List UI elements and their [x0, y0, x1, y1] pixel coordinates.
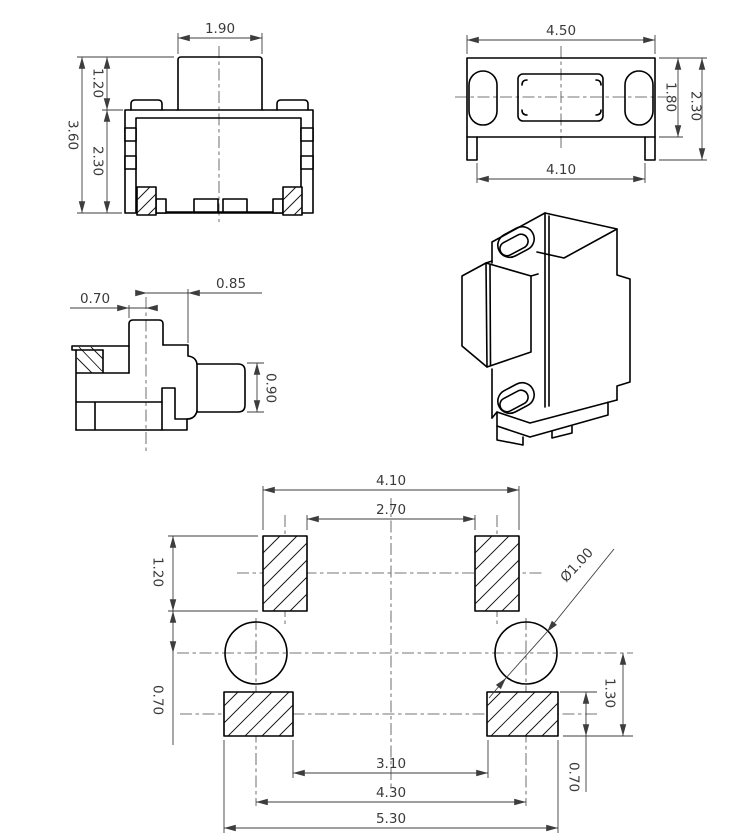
dim-front-body-height: 2.30 [90, 146, 106, 176]
iso-button-edge [486, 263, 491, 367]
side-base-plate [76, 402, 187, 430]
dim-top-depth-with-terminals: 2.30 [688, 91, 704, 121]
fp-dim-ext-120 [168, 536, 258, 611]
front-center-tab-1 [194, 199, 218, 212]
front-center-tab-2 [223, 199, 247, 212]
front-left-foot [137, 187, 156, 215]
side-right-profile [163, 345, 197, 419]
dim-fp-top-pad-span-outer: 4.10 [376, 473, 406, 489]
side-dim-ext-3 [247, 363, 264, 412]
iso-left-outline [492, 213, 545, 418]
dim-fp-bottom-pad-height: 0.70 [566, 762, 582, 792]
dim-fp-top-pad-height: 1.20 [150, 557, 166, 587]
iso-bracket-foot [497, 426, 523, 445]
dim-top-body-width: 4.50 [546, 23, 576, 39]
front-button-outline [178, 57, 262, 110]
dim-fp-top-pad-to-hole: 0.70 [150, 685, 166, 715]
dim-fp-hole-span: 4.30 [376, 785, 406, 801]
side-view: 0.70 0.85 0.90 [70, 276, 279, 452]
dim-front-button-width: 1.90 [205, 21, 235, 37]
iso-bracket [492, 400, 617, 437]
dim-side-body-offset: 0.85 [216, 276, 246, 292]
front-view: 1.90 3.60 1.20 2.30 [65, 21, 314, 222]
top-left-oval [469, 71, 497, 125]
front-left-step [156, 199, 166, 213]
side-actuator [197, 364, 245, 412]
dim-fp-top-pad-span-inner: 2.70 [376, 502, 406, 518]
top-window-corner-marks [522, 80, 601, 115]
iso-bottom-oval-outer [494, 378, 539, 417]
top-view: 4.50 4.10 1.80 2.30 [455, 23, 707, 183]
top-right-oval [625, 71, 653, 125]
iso-button-connectors [486, 261, 538, 276]
iso-button-outline [462, 263, 531, 367]
dim-side-stem-height: 0.90 [263, 373, 279, 403]
dim-top-body-depth: 1.80 [663, 82, 679, 112]
isometric-view [462, 213, 630, 445]
front-right-step [273, 199, 283, 213]
front-left-notch-1 [125, 128, 136, 141]
dim-side-stem-offset: 0.70 [80, 291, 110, 307]
front-left-bump [131, 100, 162, 110]
drawing-canvas: 1.90 3.60 1.20 2.30 4.50 4.10 1.80 2. [0, 0, 740, 840]
front-left-notch-2 [125, 156, 136, 169]
engineering-drawing: 1.90 3.60 1.20 2.30 4.50 4.10 1.80 2. [0, 0, 740, 840]
dim-front-button-protrusion: 1.20 [90, 68, 106, 98]
dim-fp-hole-diameter: Ø1.00 [557, 545, 596, 586]
iso-top-oval-outer [494, 222, 539, 261]
dim-fp-bottom-pad-span-inner: 3.10 [376, 756, 406, 772]
dim-front-overall-height: 3.60 [65, 120, 81, 150]
iso-right-outline [545, 213, 630, 400]
top-center-window [518, 74, 603, 121]
fp-dia-leader-2 [506, 632, 547, 678]
dim-fp-hole-to-pad-edge: 1.30 [602, 678, 618, 708]
front-right-bump [277, 100, 308, 110]
footprint-view: 4.10 2.70 1.20 0.70 Ø1.00 1.30 0.70 3.10… [150, 473, 634, 833]
front-right-notch-1 [301, 128, 313, 141]
side-right-tab [162, 388, 187, 430]
iso-front-edge [545, 213, 549, 407]
front-right-foot [283, 187, 302, 215]
dim-fp-bottom-pad-span-outer: 5.30 [376, 811, 406, 827]
fp-toppad-right [475, 536, 519, 611]
side-terminal-hatch [77, 347, 103, 373]
front-inner-rect [136, 118, 301, 212]
fp-toppad-left [263, 536, 307, 611]
front-right-notch-2 [301, 156, 313, 169]
dim-top-terminal-span: 4.10 [546, 162, 576, 178]
